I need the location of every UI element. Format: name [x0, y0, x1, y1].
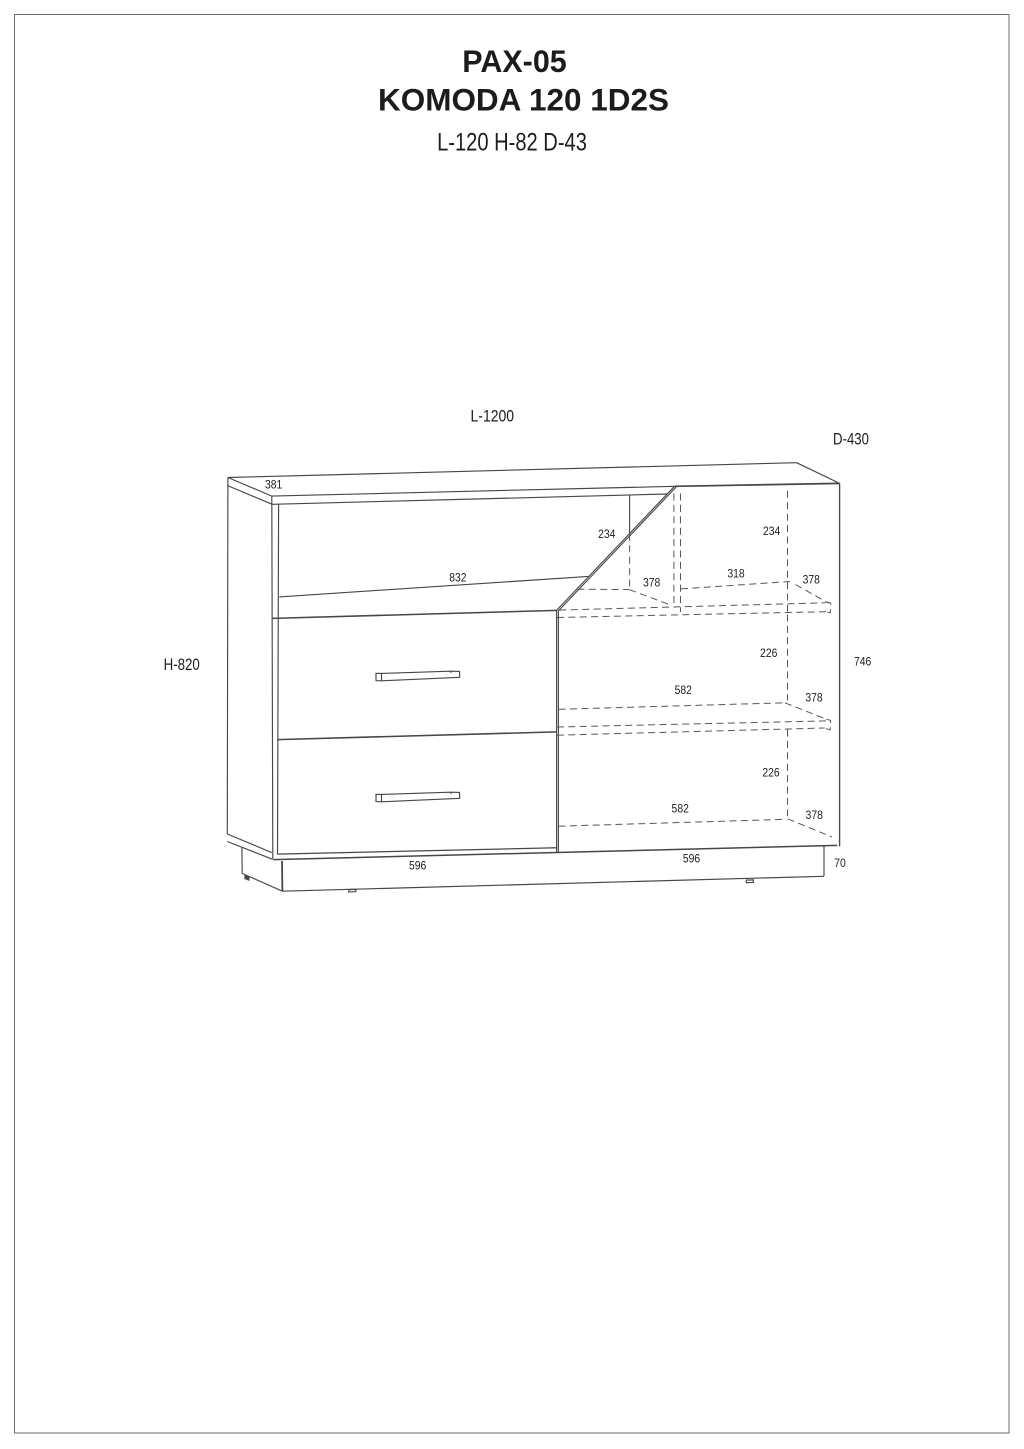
svg-text:226: 226 [762, 767, 779, 779]
svg-text:381: 381 [265, 479, 282, 491]
svg-text:70: 70 [834, 858, 846, 870]
svg-text:582: 582 [675, 685, 692, 697]
svg-text:378: 378 [806, 810, 823, 822]
svg-text:832: 832 [449, 572, 466, 584]
svg-text:378: 378 [805, 693, 822, 705]
svg-text:582: 582 [672, 804, 689, 816]
svg-text:596: 596 [409, 860, 426, 872]
svg-text:318: 318 [727, 569, 744, 581]
svg-text:378: 378 [643, 578, 660, 590]
svg-text:L-120 H-82 D-43: L-120 H-82 D-43 [437, 128, 587, 156]
svg-text:PAX-05: PAX-05 [462, 43, 567, 79]
svg-text:378: 378 [803, 575, 820, 587]
svg-text:H-820: H-820 [164, 655, 200, 674]
svg-text:D-430: D-430 [833, 430, 869, 449]
svg-text:L-1200: L-1200 [471, 406, 515, 425]
svg-text:226: 226 [760, 648, 777, 660]
svg-text:KOMODA 120 1D2S: KOMODA 120 1D2S [378, 82, 669, 118]
svg-text:234: 234 [763, 526, 781, 538]
svg-text:746: 746 [854, 657, 871, 669]
svg-text:234: 234 [598, 529, 616, 541]
svg-text:596: 596 [683, 854, 700, 866]
